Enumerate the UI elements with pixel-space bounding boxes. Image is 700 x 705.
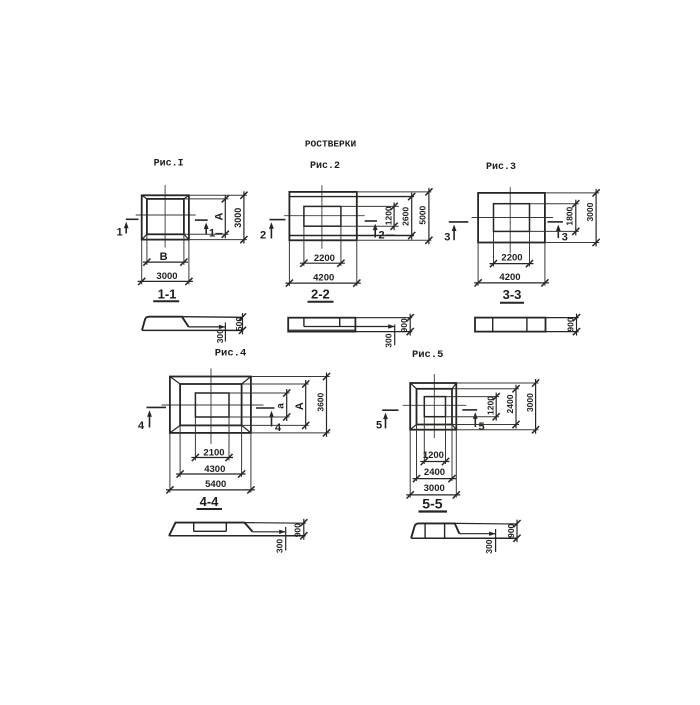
svg-text:А: А <box>294 402 306 410</box>
svg-text:3000: 3000 <box>525 393 535 412</box>
svg-text:1200: 1200 <box>384 206 394 225</box>
svg-text:900: 900 <box>565 317 575 331</box>
svg-text:4: 4 <box>138 420 145 432</box>
svg-text:2400: 2400 <box>505 394 515 413</box>
svg-text:300: 300 <box>274 539 284 553</box>
svg-text:Рис.5: Рис.5 <box>412 349 444 361</box>
svg-text:4: 4 <box>275 422 282 434</box>
svg-text:5-5: 5-5 <box>422 496 442 512</box>
svg-text:5000: 5000 <box>418 205 428 224</box>
svg-text:3-3: 3-3 <box>503 287 522 302</box>
svg-text:3000: 3000 <box>424 483 445 494</box>
svg-text:4300: 4300 <box>204 464 225 475</box>
svg-text:А: А <box>214 212 226 220</box>
svg-text:300: 300 <box>484 539 494 553</box>
svg-text:300: 300 <box>384 333 394 347</box>
svg-text:1800: 1800 <box>565 206 575 225</box>
svg-text:4200: 4200 <box>313 273 334 284</box>
svg-text:РОСТВЕРКИ: РОСТВЕРКИ <box>305 139 357 150</box>
svg-text:3: 3 <box>444 232 450 244</box>
svg-text:1200: 1200 <box>423 450 444 461</box>
svg-text:900: 900 <box>506 523 516 537</box>
svg-text:1: 1 <box>116 227 122 239</box>
svg-text:3000: 3000 <box>233 208 243 228</box>
svg-text:3: 3 <box>562 232 568 244</box>
svg-text:4200: 4200 <box>499 272 520 283</box>
svg-text:900: 900 <box>399 318 409 332</box>
svg-text:5400: 5400 <box>205 479 226 490</box>
svg-text:3000: 3000 <box>156 271 177 282</box>
svg-text:2200: 2200 <box>501 253 522 264</box>
svg-text:3600: 3600 <box>315 392 325 411</box>
svg-text:1-1: 1-1 <box>158 287 177 302</box>
svg-text:1200: 1200 <box>485 396 495 415</box>
svg-text:5: 5 <box>376 420 382 432</box>
svg-text:Рис.2: Рис.2 <box>310 161 340 172</box>
svg-text:900: 900 <box>293 523 303 537</box>
svg-text:2600: 2600 <box>400 207 410 226</box>
svg-text:Рис.I: Рис.I <box>154 159 184 170</box>
svg-text:2100: 2100 <box>203 447 224 458</box>
svg-text:2400: 2400 <box>424 467 445 478</box>
svg-text:Рис.3: Рис.3 <box>486 162 516 173</box>
svg-text:5: 5 <box>478 421 484 433</box>
svg-text:1: 1 <box>209 228 215 240</box>
svg-text:4-4: 4-4 <box>200 494 220 509</box>
svg-text:500: 500 <box>234 317 244 331</box>
svg-text:В: В <box>160 251 168 263</box>
svg-text:2200: 2200 <box>314 253 335 264</box>
svg-text:Рис.4: Рис.4 <box>215 348 247 360</box>
svg-text:2: 2 <box>260 230 266 242</box>
svg-text:3000: 3000 <box>585 202 595 221</box>
svg-text:2: 2 <box>378 230 384 242</box>
svg-text:а: а <box>276 403 287 409</box>
svg-text:2-2: 2-2 <box>311 287 330 302</box>
svg-text:300: 300 <box>215 329 225 343</box>
